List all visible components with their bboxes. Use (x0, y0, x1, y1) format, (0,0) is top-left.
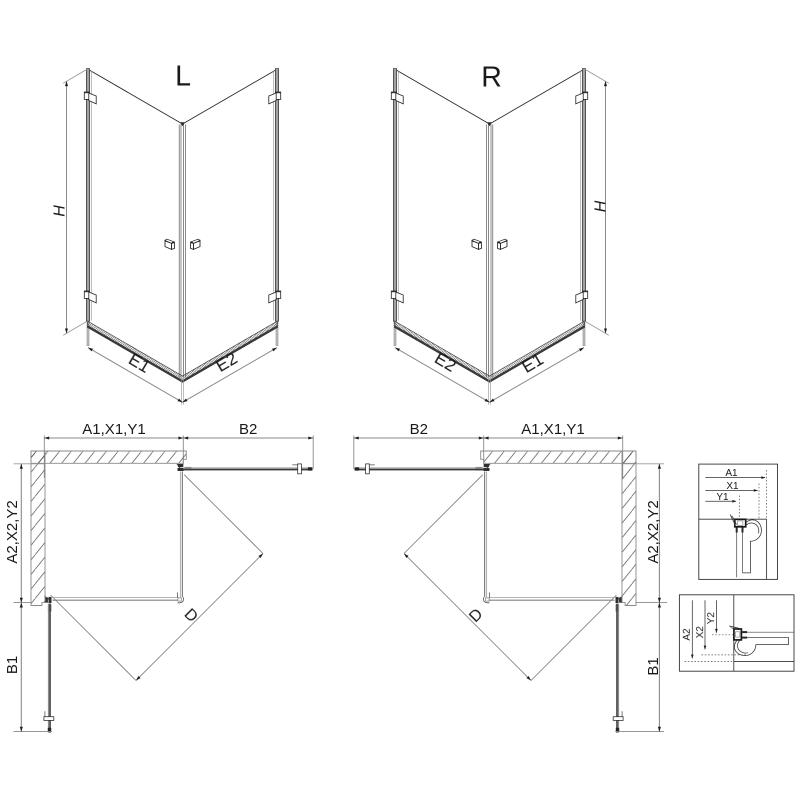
svg-text:A1,X1,Y1: A1,X1,Y1 (521, 421, 584, 438)
svg-text:A2,X2,Y2: A2,X2,Y2 (645, 500, 662, 563)
svg-text:A1,X1,Y1: A1,X1,Y1 (82, 421, 145, 438)
svg-text:H: H (593, 200, 610, 212)
svg-text:X1: X1 (726, 481, 739, 492)
svg-text:H: H (52, 205, 69, 217)
svg-text:A1: A1 (725, 468, 738, 479)
svg-text:A2,X2,Y2: A2,X2,Y2 (4, 500, 21, 563)
svg-text:Y2: Y2 (706, 612, 717, 625)
svg-text:B2: B2 (410, 421, 428, 438)
svg-text:L: L (175, 61, 191, 93)
svg-text:A2: A2 (682, 628, 693, 641)
svg-text:X2: X2 (695, 626, 706, 639)
svg-text:B1: B1 (645, 657, 662, 675)
svg-text:B1: B1 (4, 656, 21, 674)
svg-text:Y1: Y1 (716, 492, 729, 503)
svg-text:B2: B2 (239, 421, 257, 438)
svg-text:R: R (481, 62, 502, 94)
